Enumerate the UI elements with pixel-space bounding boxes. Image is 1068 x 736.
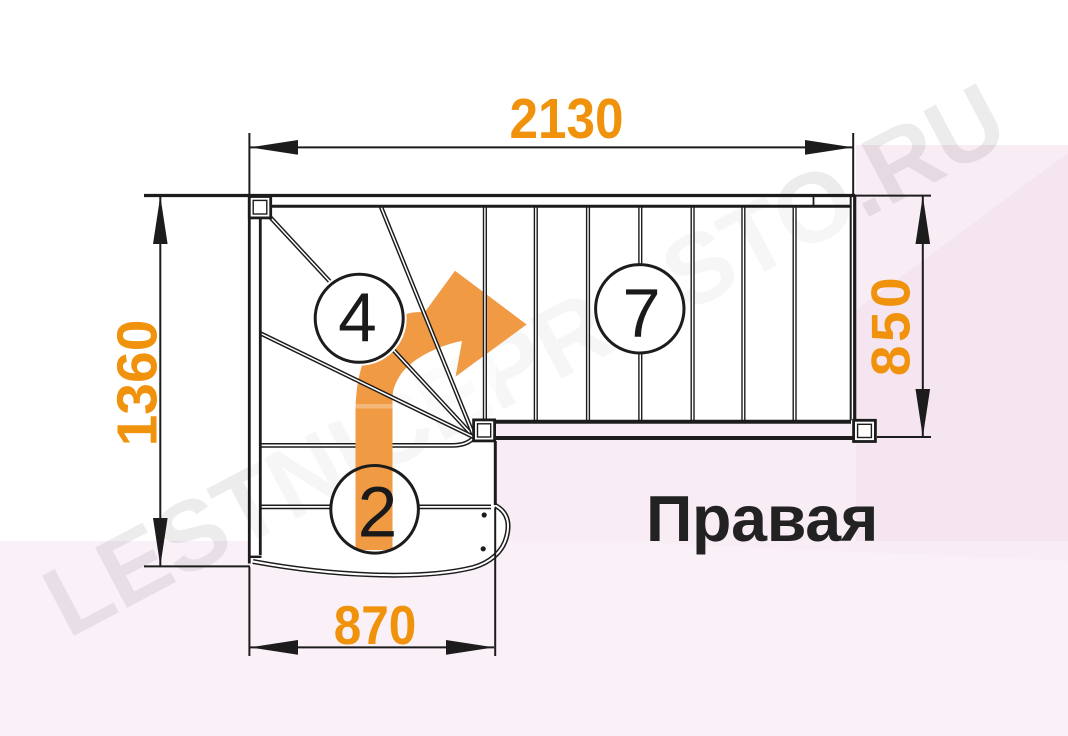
svg-text:870: 870 [334,596,417,657]
svg-text:2130: 2130 [509,87,623,150]
svg-text:850: 850 [860,274,922,376]
svg-text:7: 7 [622,275,660,352]
svg-text:4: 4 [338,279,377,357]
svg-text:2: 2 [358,473,398,553]
svg-text:1360: 1360 [106,320,170,447]
svg-text:Правая: Правая [646,483,878,555]
